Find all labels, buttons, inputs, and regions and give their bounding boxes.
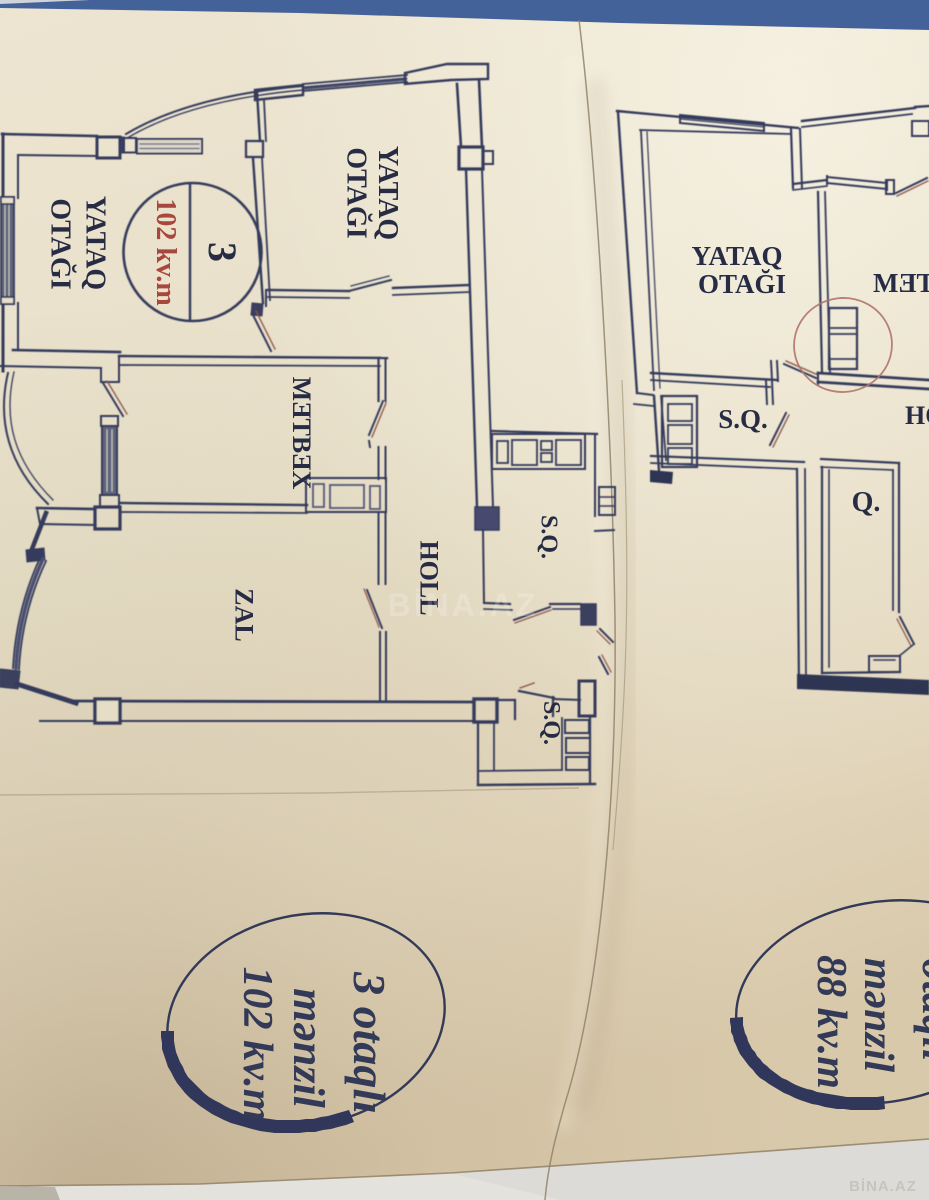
- svg-text:3 otaqlı: 3 otaqlı: [344, 971, 395, 1114]
- svg-text:3: 3: [200, 242, 245, 262]
- svg-text:S.Q.: S.Q.: [718, 404, 768, 434]
- svg-text:88 kv.m: 88 kv.m: [808, 955, 854, 1089]
- svg-text:ZAL: ZAL: [230, 588, 259, 641]
- svg-text:Q.: Q.: [852, 487, 881, 518]
- svg-text:YATAQ: YATAQ: [372, 146, 403, 240]
- svg-text:MƎTBƎX: MƎTBƎX: [873, 268, 929, 298]
- svg-text:HOLL: HOLL: [905, 401, 929, 430]
- svg-text:S.Q.: S.Q.: [538, 701, 564, 745]
- svg-text:MƎTBƎX: MƎTBƎX: [287, 377, 316, 490]
- svg-text:YATAQ: YATAQ: [691, 241, 782, 271]
- svg-text:OTAĞI: OTAĞI: [45, 198, 76, 289]
- svg-text:102 kv.m: 102 kv.m: [234, 967, 280, 1122]
- svg-text:OTAĞI: OTAĞI: [698, 269, 786, 299]
- svg-text:BİNA.AZ: BİNA.AZ: [849, 1178, 917, 1195]
- svg-text:YATAQ: YATAQ: [80, 196, 111, 290]
- svg-text:S.Q.: S.Q.: [536, 515, 562, 559]
- svg-text:BİNA.AZ: BİNA.AZ: [388, 587, 539, 623]
- svg-text:mənzil: mənzil: [855, 958, 901, 1073]
- svg-text:OTAĞI: OTAĞI: [341, 147, 372, 238]
- svg-text:102 kv.m: 102 kv.m: [150, 198, 181, 305]
- svg-text:mənzil: mənzil: [284, 988, 333, 1109]
- svg-text:otaqlı: otaqlı: [913, 959, 929, 1062]
